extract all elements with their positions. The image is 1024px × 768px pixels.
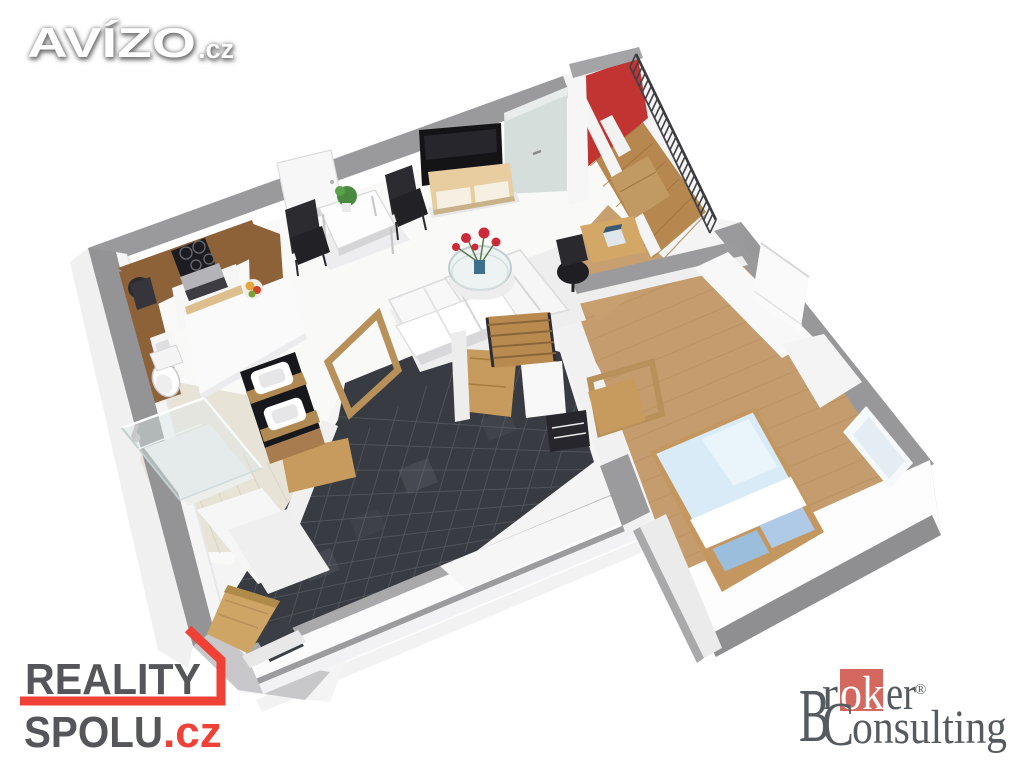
svg-text:onsulting: onsulting: [852, 701, 1007, 754]
svg-text:.cz: .cz: [163, 708, 222, 757]
svg-text:®: ®: [915, 682, 926, 698]
svg-text:AVÍZO: AVÍZO: [27, 19, 196, 66]
svg-text:SPOLU: SPOLU: [24, 708, 163, 757]
svg-text:C: C: [822, 691, 854, 759]
svg-text:.cz: .cz: [198, 34, 234, 64]
